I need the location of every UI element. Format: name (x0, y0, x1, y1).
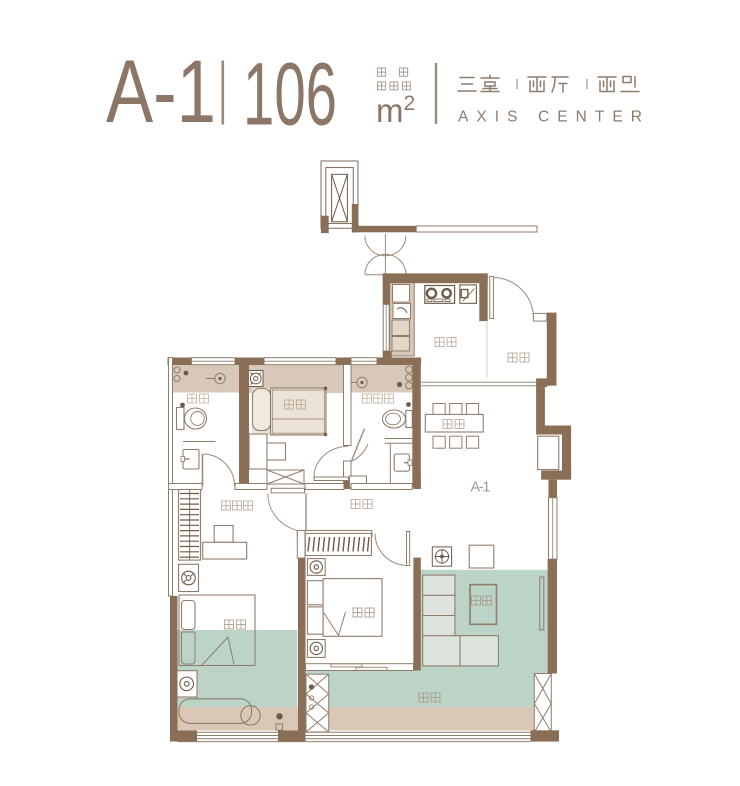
svg-text:A-1: A-1 (106, 41, 216, 141)
svg-text:A-1: A-1 (471, 480, 491, 496)
svg-text:106: 106 (243, 44, 337, 144)
